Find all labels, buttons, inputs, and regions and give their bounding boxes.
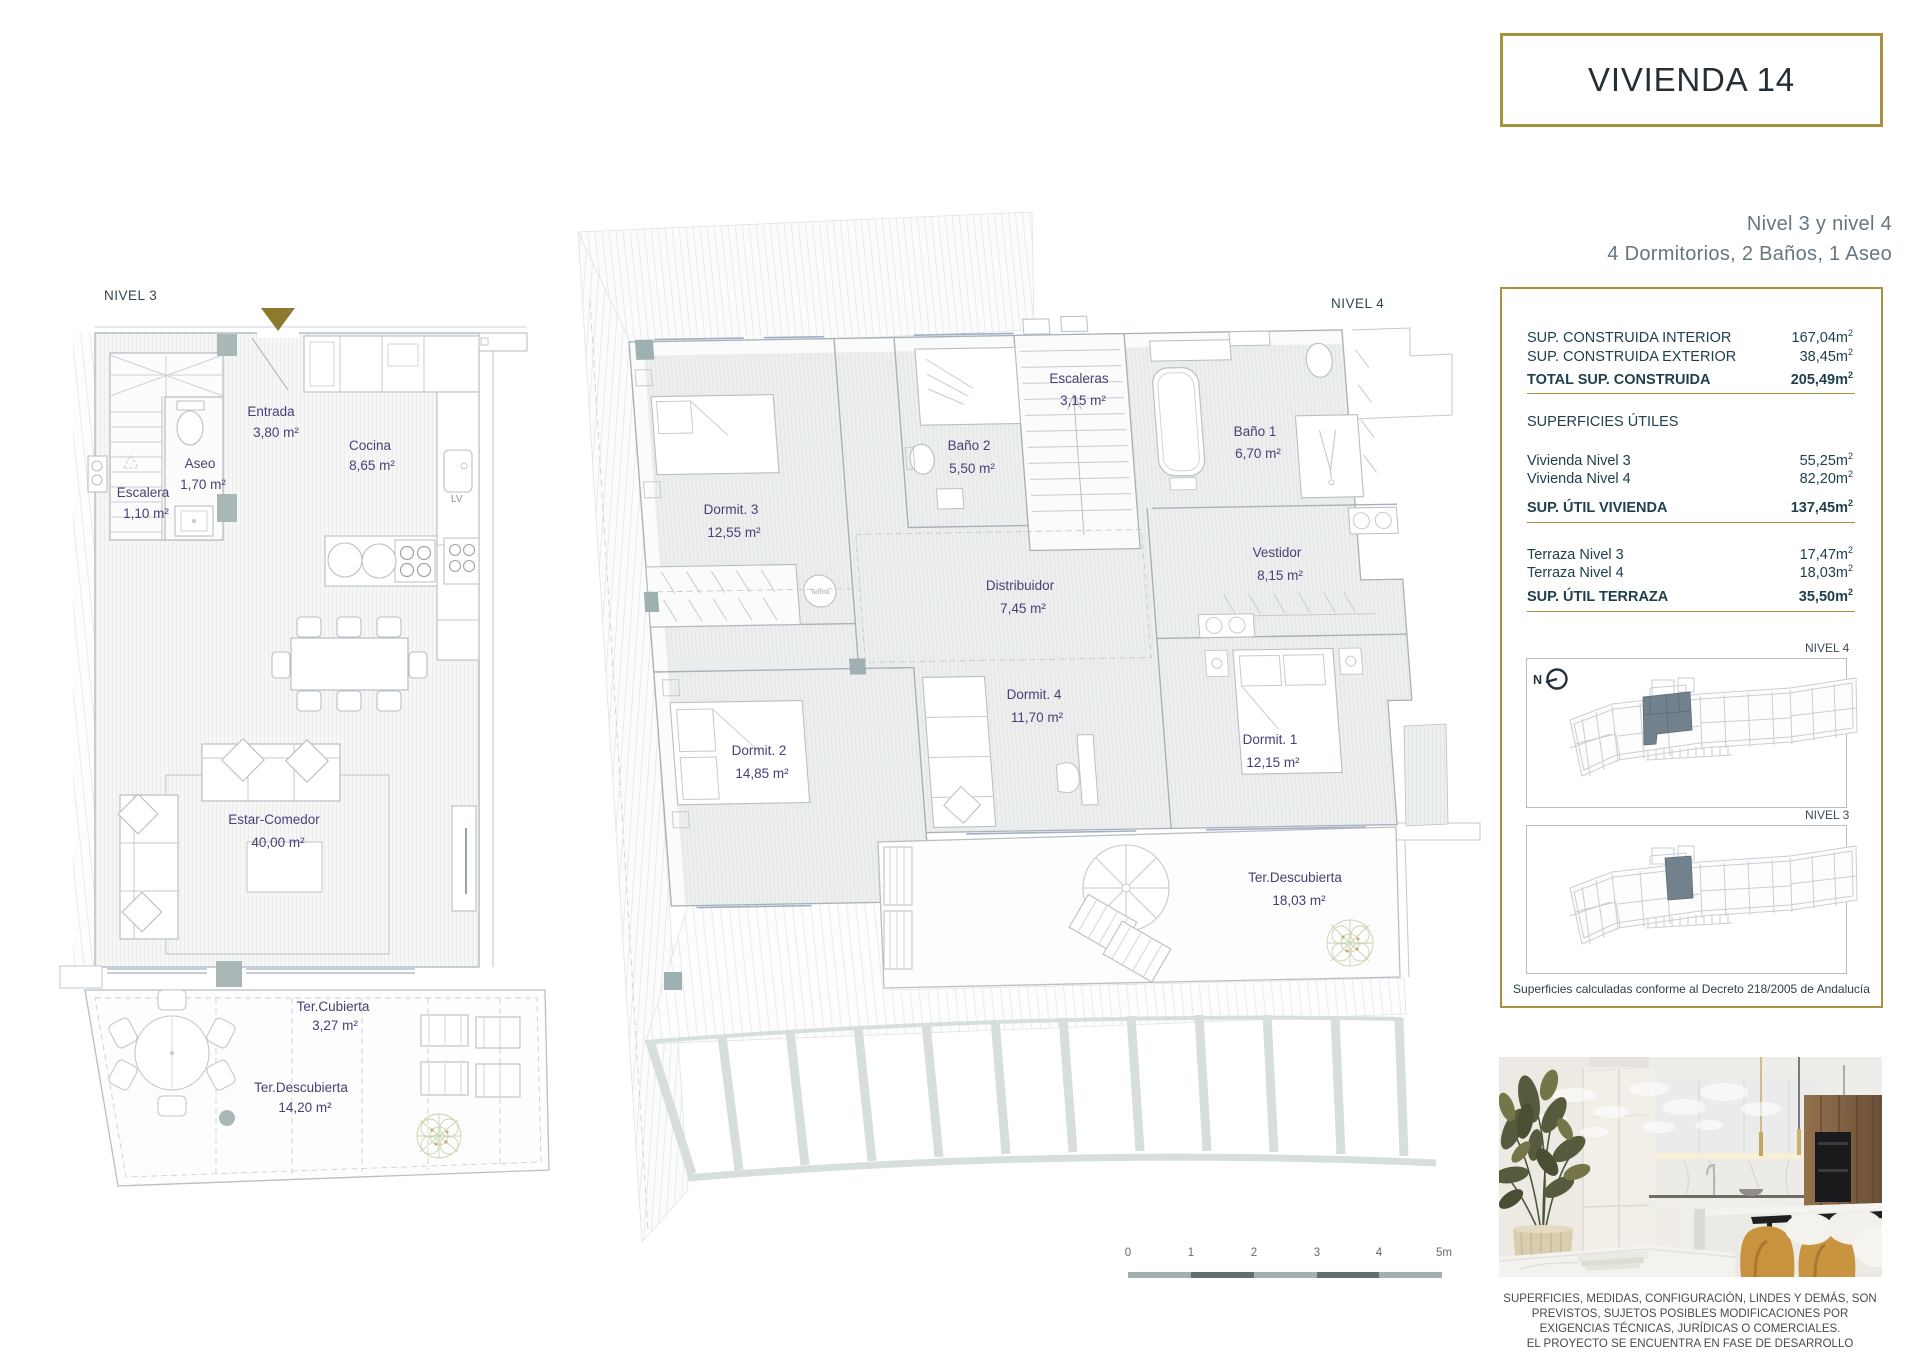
svg-text:Entrada: Entrada <box>247 404 295 419</box>
svg-text:Dormit. 4: Dormit. 4 <box>1007 687 1062 702</box>
svg-text:3,80 m²: 3,80 m² <box>253 425 299 440</box>
svg-text:LV: LV <box>451 494 463 505</box>
svg-text:5,50 m²: 5,50 m² <box>949 461 995 476</box>
svg-text:8,65 m²: 8,65 m² <box>349 458 395 473</box>
svg-text:1: 1 <box>1188 1247 1194 1259</box>
svg-text:3,27 m²: 3,27 m² <box>312 1018 358 1033</box>
svg-text:5m: 5m <box>1436 1247 1452 1259</box>
svg-text:Vestidor: Vestidor <box>1253 545 1302 560</box>
svg-text:7,45 m²: 7,45 m² <box>1000 601 1046 616</box>
svg-text:Ter.Cubierta: Ter.Cubierta <box>297 999 370 1014</box>
svg-text:4: 4 <box>1376 1247 1383 1259</box>
svg-text:0: 0 <box>1125 1247 1131 1259</box>
svg-text:Ter.Descubierta: Ter.Descubierta <box>254 1080 348 1095</box>
svg-text:12,55 m²: 12,55 m² <box>707 525 761 540</box>
svg-text:Dormit. 3: Dormit. 3 <box>704 502 759 517</box>
svg-text:Distribuidor: Distribuidor <box>986 578 1055 593</box>
svg-text:Dormit. 1: Dormit. 1 <box>1243 732 1298 747</box>
svg-text:3,15 m²: 3,15 m² <box>1060 393 1106 408</box>
svg-text:Baño 2: Baño 2 <box>948 438 991 453</box>
svg-text:Estar-Comedor: Estar-Comedor <box>228 812 320 827</box>
svg-text:2: 2 <box>1251 1247 1257 1259</box>
svg-text:NIVEL 4: NIVEL 4 <box>1331 296 1384 311</box>
svg-text:Dormit. 2: Dormit. 2 <box>732 743 787 758</box>
svg-text:40,00 m²: 40,00 m² <box>251 835 305 850</box>
svg-text:1,10 m²: 1,10 m² <box>123 506 169 521</box>
svg-text:1,70 m²: 1,70 m² <box>180 477 226 492</box>
svg-text:Cocina: Cocina <box>349 438 392 453</box>
svg-text:3: 3 <box>1314 1247 1320 1259</box>
svg-text:12,15 m²: 12,15 m² <box>1246 755 1300 770</box>
svg-text:Aseo: Aseo <box>185 456 216 471</box>
svg-text:Ter.Descubierta: Ter.Descubierta <box>1248 870 1342 885</box>
svg-text:NIVEL 3: NIVEL 3 <box>104 288 157 303</box>
svg-text:11,70 m²: 11,70 m² <box>1011 710 1064 725</box>
svg-text:Escalera: Escalera <box>117 485 170 500</box>
svg-text:6,70 m²: 6,70 m² <box>1235 446 1281 461</box>
svg-text:Baño 1: Baño 1 <box>1234 424 1277 439</box>
svg-text:14,20 m²: 14,20 m² <box>278 1100 332 1115</box>
svg-text:18,03 m²: 18,03 m² <box>1272 893 1326 908</box>
svg-text:8,15 m²: 8,15 m² <box>1257 568 1303 583</box>
svg-text:Escaleras: Escaleras <box>1049 371 1109 386</box>
svg-text:N: N <box>1533 673 1542 687</box>
svg-text:14,85 m²: 14,85 m² <box>735 766 789 781</box>
svg-text:Termo: Termo <box>810 589 830 596</box>
